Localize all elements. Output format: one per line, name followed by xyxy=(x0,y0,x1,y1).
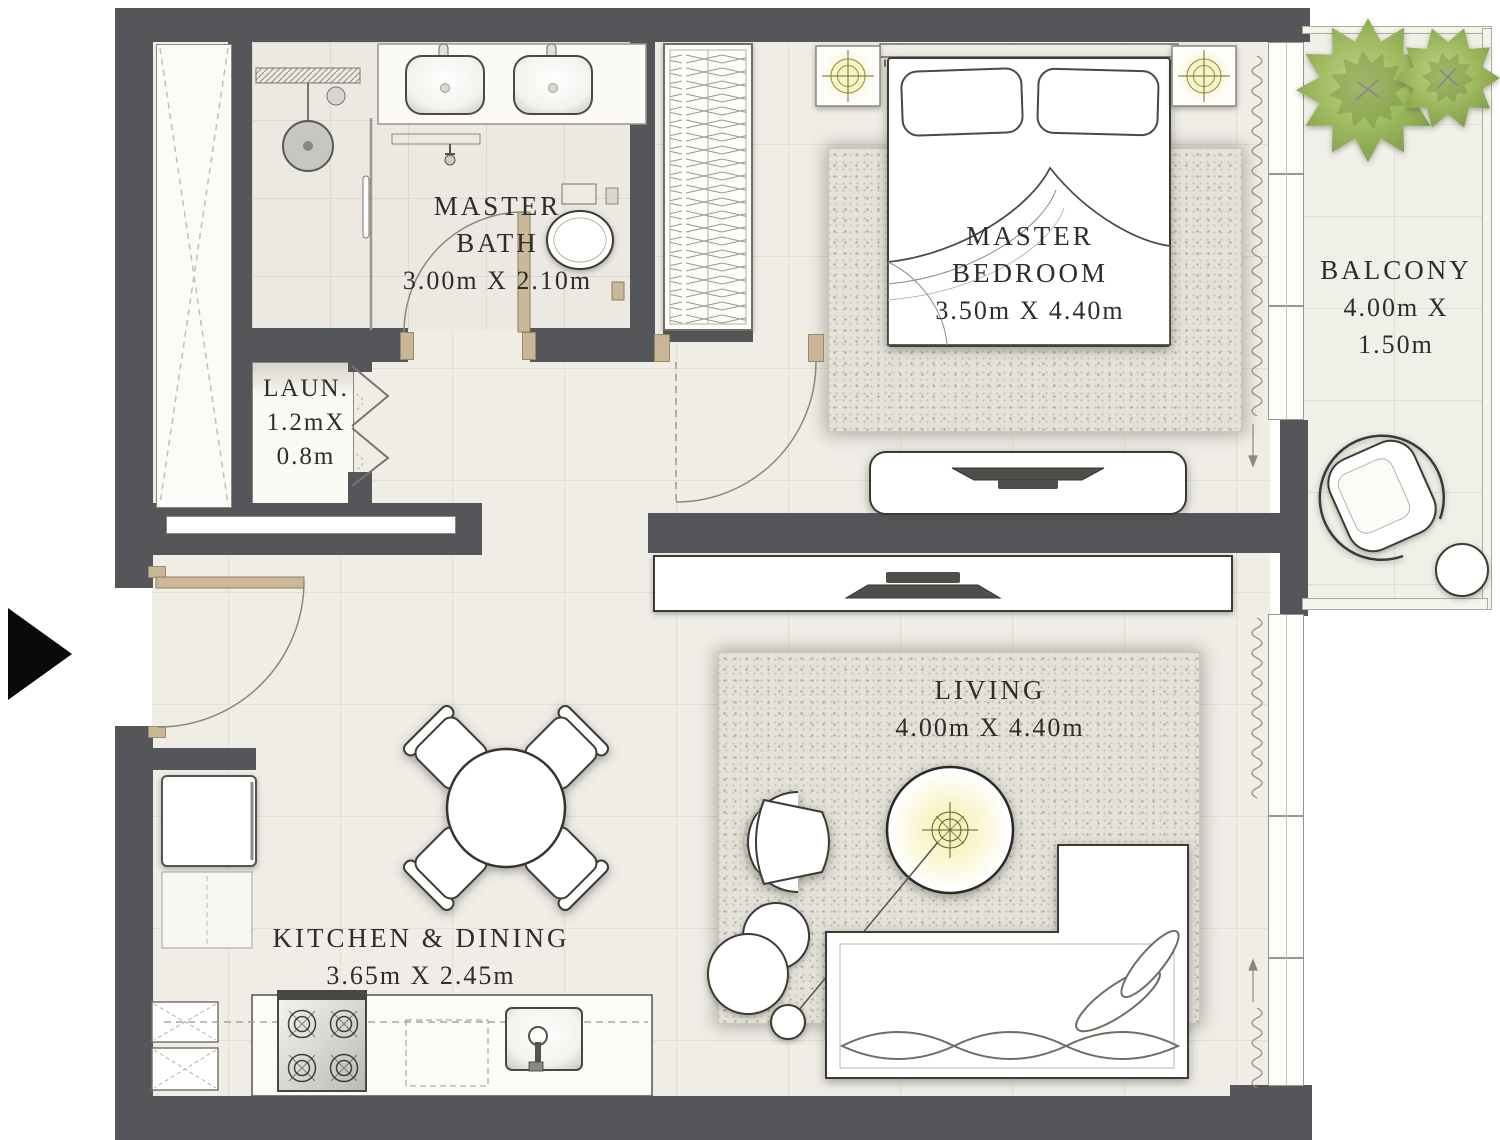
room-dimensions: 4.00m X 4.40m xyxy=(850,709,1130,746)
room-name: LAUN. xyxy=(250,372,362,406)
wall-right-mid xyxy=(1280,420,1308,616)
room-name: KITCHEN & DINING xyxy=(230,920,612,957)
window-mullion xyxy=(1269,173,1303,175)
room-name: BATH xyxy=(330,225,665,262)
room-dimensions: 0.8m xyxy=(250,440,362,474)
wall-fridge-nook xyxy=(152,748,256,770)
room-name: MASTER xyxy=(885,218,1175,255)
hall-closet-shelf xyxy=(166,516,456,534)
room-label-master-bath: MASTER BATH 3.00m X 2.10m xyxy=(330,188,665,299)
room-label-balcony: BALCONY 4.00m X 1.50m xyxy=(1306,252,1486,363)
room-dimensions: 3.65m X 2.45m xyxy=(230,957,612,994)
room-name: BEDROOM xyxy=(885,255,1175,292)
entry-jamb-bottom xyxy=(148,726,166,738)
wall-left-upper xyxy=(115,8,153,588)
room-dimensions: 4.00m X xyxy=(1306,289,1486,326)
wall-bedroom-living xyxy=(648,513,1285,553)
window-mullion xyxy=(1269,305,1303,307)
room-label-kitchen-dining: KITCHEN & DINING 3.65m X 2.45m xyxy=(230,920,612,994)
room-label-laundry: LAUN. 1.2mX 0.8m xyxy=(250,372,362,474)
room-dimensions: 3.00m X 2.10m xyxy=(330,262,665,299)
living-window xyxy=(1268,614,1304,1086)
room-dimensions: 1.50m xyxy=(1306,326,1486,363)
wall-bottom xyxy=(115,1096,1312,1140)
room-dimensions: 3.50m X 4.40m xyxy=(885,292,1175,329)
duct-shaft xyxy=(156,44,232,508)
balcony-rail-top xyxy=(1302,26,1492,34)
wall-corner-southeast xyxy=(1230,1085,1312,1140)
wall-laundry-stub-top xyxy=(348,338,372,372)
room-dimensions: 1.2mX xyxy=(250,406,362,440)
wall-wardrobe-stub xyxy=(663,322,753,342)
room-label-master-bedroom: MASTER BEDROOM 3.50m X 4.40m xyxy=(885,218,1175,329)
window-mullion xyxy=(1269,957,1303,959)
bedroom-door-jamb-right xyxy=(808,334,824,362)
wall-laundry-stub-bottom xyxy=(348,472,372,506)
window-mullion xyxy=(1269,815,1303,817)
entry-arrow-icon xyxy=(8,608,72,700)
balcony-rail-bottom xyxy=(1302,598,1488,610)
wall-top xyxy=(115,8,1310,42)
room-name: LIVING xyxy=(850,672,1130,709)
wall-bath-south-left xyxy=(228,328,408,362)
floor-plan: MASTER BATH 3.00m X 2.10m LAUN. 1.2mX 0.… xyxy=(0,0,1500,1140)
bedroom-window xyxy=(1268,42,1304,420)
entry-jamb-top xyxy=(148,566,166,578)
bedroom-door-jamb-left xyxy=(654,334,670,362)
wall-left-lower xyxy=(115,726,153,1138)
room-name: BALCONY xyxy=(1306,252,1486,289)
bath-door-jamb-left xyxy=(400,332,414,360)
bath-door-jamb-right xyxy=(522,332,536,360)
room-name: MASTER xyxy=(330,188,665,225)
room-label-living: LIVING 4.00m X 4.40m xyxy=(850,672,1130,746)
